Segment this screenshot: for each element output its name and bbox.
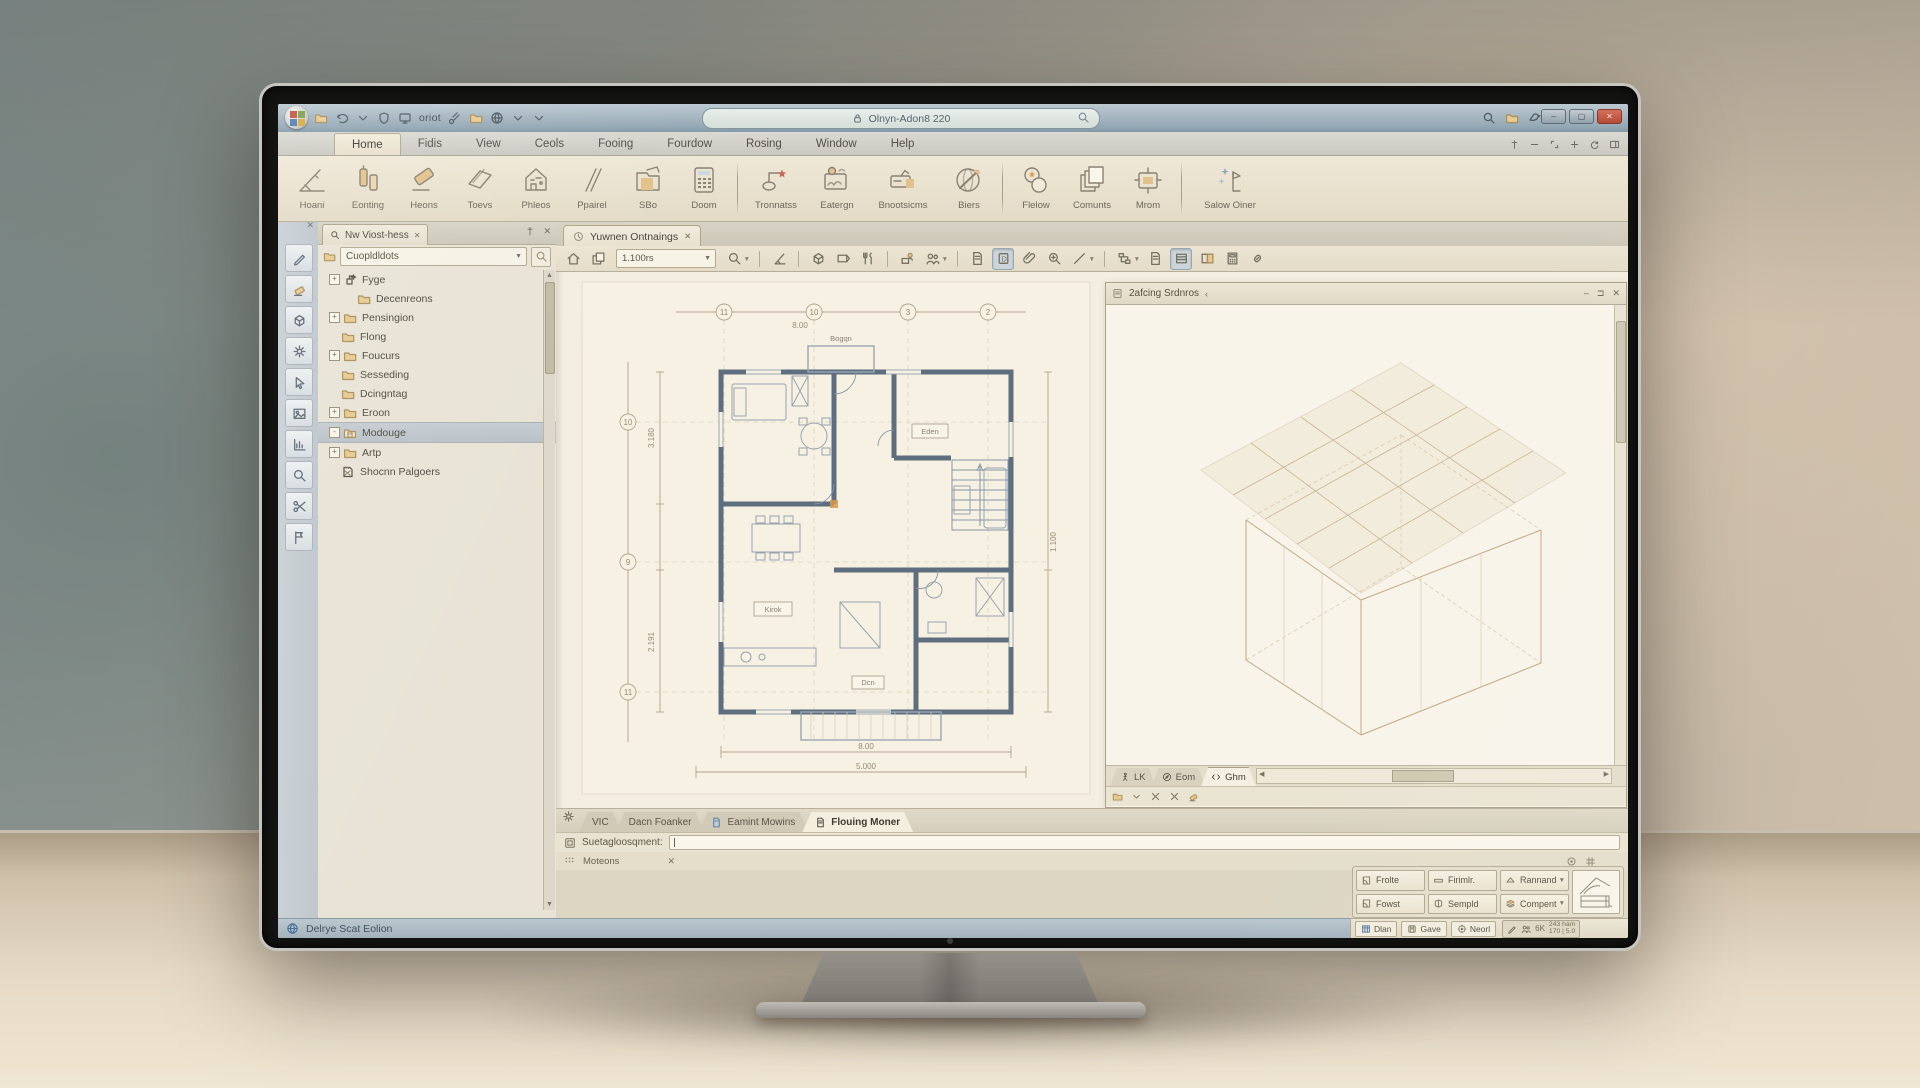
tree-item-label: Artp	[362, 447, 381, 459]
scroll-down-icon[interactable]: ▼	[544, 899, 555, 910]
folder-icon	[341, 330, 355, 344]
flag-icon	[292, 530, 307, 545]
door-icon	[1361, 898, 1372, 909]
minus-icon[interactable]	[1529, 139, 1540, 150]
sbo-button[interactable]: SBo	[620, 156, 676, 221]
button-label: Gave	[1420, 924, 1440, 934]
image-icon	[292, 406, 307, 421]
plug-icon	[1131, 163, 1165, 197]
magnifier-icon	[727, 251, 742, 266]
axonometry-vertical-scrollbar[interactable]	[1614, 305, 1626, 765]
navigator-search-button[interactable]	[531, 247, 551, 267]
scroll-left-icon[interactable]: ◀	[1259, 770, 1264, 778]
button-label: Fowst	[1376, 899, 1400, 909]
menu-fourdow[interactable]: Fourdow	[650, 132, 729, 155]
navigator-combo-value: Cuopldldots	[346, 251, 399, 262]
doc-tool-doc-icon[interactable]	[1145, 249, 1165, 269]
flelow-button[interactable]: Flelow	[1008, 156, 1064, 221]
tool-chart-icon[interactable]	[285, 430, 313, 458]
toolbar-button-label: Hoani	[300, 200, 325, 211]
toolbar-button-label: SBo	[639, 200, 657, 211]
doc-blue-icon	[711, 817, 722, 828]
dimension-label: 1.100	[1049, 531, 1058, 552]
chevron-down-icon[interactable]: ▼	[1559, 900, 1565, 907]
line-icon	[1072, 251, 1087, 266]
flow-icon	[1117, 251, 1132, 266]
calc-icon	[1225, 251, 1240, 266]
tool-pen-icon[interactable]	[285, 244, 313, 272]
button-label: Firimlr.	[1448, 875, 1475, 885]
fowst-button[interactable]: Fowst	[1356, 894, 1425, 915]
pin-icon[interactable]	[1509, 139, 1520, 150]
axonometry-viewport[interactable]	[1106, 305, 1626, 765]
pen-icon	[292, 251, 307, 266]
rannand-button[interactable]: Rannand▼	[1500, 870, 1569, 891]
command-row: Suetagloosqment:	[556, 832, 1628, 852]
menu-fidis[interactable]: Fidis	[401, 132, 459, 155]
menu-bar: HomeFidisViewCeolsFooingFourdowRosingWin…	[278, 132, 1628, 156]
toolbar-button-label: Tronnatss	[755, 200, 797, 211]
hoani-button[interactable]: Hoani	[284, 156, 340, 221]
expand-icon[interactable]: +	[329, 447, 340, 458]
navigator-scrollbar[interactable]: ▲ ▼	[543, 270, 555, 910]
node-icon	[343, 273, 357, 287]
sempld-button[interactable]: Sempld	[1428, 894, 1497, 915]
chrome-right-icons	[1482, 104, 1542, 132]
tool-scissors-icon[interactable]	[285, 492, 313, 520]
dimension-label: 3.180	[647, 427, 656, 448]
tree-item-label: Eroon	[362, 407, 390, 419]
box3d-icon	[811, 251, 826, 266]
toevs-button[interactable]: Toevs	[452, 156, 508, 221]
doc-tool-calc-icon[interactable]	[1222, 249, 1242, 269]
menu-ceols[interactable]: Ceols	[518, 132, 581, 155]
status-bar-left: Delrye Scat Eolion	[278, 918, 1350, 938]
tree-item-label: Foucurs	[362, 350, 400, 362]
grid-bubble-label: 2	[986, 308, 991, 317]
spray-icon[interactable]	[448, 111, 462, 125]
doc-tool-label-icon[interactable]	[833, 249, 853, 269]
bird-icon[interactable]	[1528, 111, 1542, 125]
tree-item-eroon[interactable]: +Eroon	[318, 403, 556, 422]
grid-bubble-label: 10	[810, 308, 819, 317]
target-icon[interactable]	[1566, 856, 1577, 867]
grid-icon[interactable]	[1585, 856, 1596, 867]
salow-oiner-button[interactable]: Salow Oiner	[1187, 156, 1273, 221]
quick-launch-text[interactable]: oriot	[419, 112, 441, 124]
ruler-compass-icon	[295, 163, 329, 197]
layers-icon	[591, 251, 606, 266]
view-tab-vic[interactable]: VIC	[579, 812, 622, 832]
chevron-down-icon[interactable]	[511, 111, 525, 125]
axonometry-window: 2afcing Srdnros ‹ –⊐✕	[1105, 282, 1627, 808]
menu-window[interactable]: Window	[799, 132, 874, 155]
people-icon	[1521, 924, 1531, 934]
folder-icon	[341, 368, 355, 382]
tronnatss-button[interactable]: Tronnatss	[743, 156, 809, 221]
scroll-right-icon[interactable]: ▶	[1604, 770, 1609, 778]
button-label: Rannand	[1520, 875, 1557, 885]
tool-cursor-icon[interactable]	[285, 368, 313, 396]
chevron-down-icon[interactable]: ▼	[744, 256, 750, 263]
doc-tool-layers-icon[interactable]	[588, 249, 608, 269]
monitor-stand	[800, 953, 1100, 1007]
menu-home[interactable]: Home	[334, 133, 401, 155]
navigator-tab-label: Nw Viost-hess	[345, 230, 409, 241]
browser-chrome-bar: oriot Olnyn-Adon8 220 –▢✕	[278, 104, 1628, 133]
mrom-button[interactable]: Mrom	[1120, 156, 1176, 221]
doc-tool-people-icon[interactable]: ▼	[922, 249, 942, 269]
project-tree: +FygeDecenreons+PensingionFlong+FoucursS…	[318, 270, 556, 481]
chevron-down-icon[interactable]: ▼	[1134, 256, 1140, 263]
doc-tool-doc-icon[interactable]	[967, 249, 987, 269]
eonting-button[interactable]: Eonting	[340, 156, 396, 221]
toolbar-separator	[759, 251, 760, 267]
doc-tool-tools-icon[interactable]	[858, 249, 878, 269]
doc-tool-line-icon[interactable]: ▼	[1069, 249, 1089, 269]
axonometry-drawing	[1106, 305, 1611, 765]
axonometry-window-titlebar[interactable]: 2afcing Srdnros ‹ –⊐✕	[1106, 283, 1626, 305]
eraser-icon	[292, 282, 307, 297]
ruled-icon	[1174, 251, 1189, 266]
chevron-down-icon[interactable]	[1131, 791, 1142, 802]
tree-item-label: Fyge	[362, 274, 385, 286]
zoom-icon	[1047, 251, 1062, 266]
status-bar-right: DlanGaveNeorl6K243 hám170 | 5.0	[1350, 918, 1628, 938]
folder-icon[interactable]	[469, 111, 483, 125]
options-close-icon[interactable]: ✕	[667, 856, 675, 867]
eraser-big-icon	[407, 163, 441, 197]
view-tab-flouing-moner[interactable]: Flouing Moner	[802, 812, 913, 832]
detail-preview-thumbnail[interactable]	[1572, 870, 1620, 914]
chevron-down-icon[interactable]	[532, 111, 546, 125]
document-tab-close-icon[interactable]: ✕	[684, 231, 691, 242]
chart-icon	[292, 437, 307, 452]
document-toolbar: 1.100rs▼▼▼D▼▼	[556, 246, 1628, 272]
doc-icon	[970, 251, 985, 266]
tree-item-shocnn-palgoers[interactable]: Shocnn Palgoers	[318, 462, 556, 481]
dock-icon[interactable]	[1609, 139, 1620, 150]
grid-dots-icon	[564, 856, 575, 867]
expand-icon[interactable]	[1549, 139, 1560, 150]
button-label: Frolte	[1376, 875, 1399, 885]
button-label: Sempld	[1448, 899, 1479, 909]
shell-icon	[1433, 898, 1444, 909]
tree-item-foucurs[interactable]: +Foucurs	[318, 346, 556, 365]
compass-icon	[1162, 772, 1172, 782]
toolbar-separator	[798, 251, 799, 267]
tab-label: LK	[1134, 772, 1146, 783]
button-label: Dlan	[1374, 924, 1391, 934]
doc-icon	[815, 817, 826, 828]
left-tool-strip: ✕	[278, 222, 319, 918]
doc-tool-zoom-icon[interactable]	[1044, 249, 1064, 269]
columns-icon	[351, 163, 385, 197]
view-tab-eamint-mowins[interactable]: Eamint Mowins	[698, 812, 808, 832]
menu-fooing[interactable]: Fooing	[581, 132, 650, 155]
tool-flag-icon[interactable]	[285, 523, 313, 551]
axonometry-horizontal-scrollbar[interactable]: ◀ ▶	[1256, 768, 1612, 784]
button-label: Neorl	[1470, 924, 1490, 934]
axonometry-window-title: 2afcing Srdnros	[1129, 288, 1199, 299]
doc-tool-box3d-icon[interactable]	[808, 249, 828, 269]
expand-icon[interactable]: +	[329, 407, 340, 418]
door-icon	[1361, 875, 1372, 886]
dimension-label: 8.00	[792, 321, 808, 330]
pin-window-button[interactable]: ⊐	[1597, 288, 1605, 298]
bezel-logo-dot	[947, 938, 953, 944]
magnifier-icon[interactable]	[1482, 111, 1496, 125]
tree-item-label: Flong	[360, 331, 386, 343]
eraser-icon[interactable]	[1188, 791, 1199, 802]
comunts-button[interactable]: Comunts	[1064, 156, 1120, 221]
target-icon	[1457, 924, 1467, 934]
collapse-icon[interactable]: -	[329, 427, 340, 438]
stack-icon	[1505, 898, 1516, 909]
folder-icon	[341, 387, 355, 401]
tree-item-label: Pensingion	[362, 312, 414, 324]
window-controls: –▢✕	[1541, 109, 1622, 124]
address-bar[interactable]: Olnyn-Adon8 220	[702, 108, 1100, 129]
application-screen: oriot Olnyn-Adon8 220 –▢✕ HomeFidisViewC…	[278, 104, 1628, 938]
view-settings-icon[interactable]	[562, 810, 575, 828]
phleos-button[interactable]: Phleos	[508, 156, 564, 221]
minimize-window-button[interactable]: –	[1584, 288, 1589, 298]
close-window-button[interactable]: ✕	[1612, 288, 1620, 298]
close-icon[interactable]	[1150, 791, 1161, 802]
tree-item-label: Dcingntag	[360, 388, 407, 400]
svg-text:D: D	[1001, 255, 1007, 264]
beam-icon	[463, 163, 497, 197]
layers3-icon	[1075, 163, 1109, 197]
shield-icon[interactable]	[377, 111, 391, 125]
navigator-tab[interactable]: Nw Viost-hess ✕	[322, 224, 428, 245]
sketch-icon	[341, 465, 355, 479]
tab-label: Dacn Foanker	[629, 817, 692, 828]
command-label: Suetagloosqment:	[582, 837, 663, 848]
tree-item-dcingntag[interactable]: Dcingntag	[318, 384, 556, 403]
toolbar-separator	[887, 251, 888, 267]
clip-icon	[1022, 251, 1037, 266]
undo-icon[interactable]	[335, 111, 349, 125]
scale-combobox[interactable]: 1.100rs▼	[616, 249, 716, 268]
tool-eraser-icon[interactable]	[285, 275, 313, 303]
dlan-button[interactable]: Dlan	[1355, 921, 1397, 937]
close-button[interactable]: ✕	[1597, 109, 1622, 124]
grid-bubble-label: 11	[624, 688, 633, 697]
neorl-button[interactable]: Neorl	[1451, 921, 1496, 937]
pen-icon	[1507, 924, 1517, 934]
refresh-icon[interactable]	[1589, 139, 1600, 150]
toolbar-separator	[1002, 162, 1003, 215]
tree-item-label: Sesseding	[360, 369, 409, 381]
room-label: Dcn	[861, 678, 874, 687]
minimize-button[interactable]: –	[1541, 109, 1566, 124]
address-search-icon[interactable]	[1077, 111, 1090, 124]
callout-icon	[886, 163, 920, 197]
doc-icon	[1148, 251, 1163, 266]
monitor-icon[interactable]	[398, 111, 412, 125]
monitor-stand-base	[756, 1002, 1146, 1018]
tree-item-artp[interactable]: +Artp	[318, 443, 556, 462]
dimension-label: 2.191	[647, 631, 656, 652]
ruler-icon	[772, 251, 787, 266]
plus-icon[interactable]	[1569, 139, 1580, 150]
toolbar-group: FlelowComuntsMrom	[1008, 156, 1176, 221]
sparkle-flag-icon	[1213, 163, 1247, 197]
tree-item-modouge[interactable]: -Modouge	[318, 422, 556, 443]
room-label: Kirok	[764, 605, 781, 614]
command-input[interactable]	[669, 835, 1620, 850]
doc-tool-marker-icon[interactable]: D	[992, 248, 1014, 270]
monitor: oriot Olnyn-Adon8 220 –▢✕ HomeFidisViewC…	[259, 83, 1641, 951]
tool-image-icon[interactable]	[285, 399, 313, 427]
folder-icon[interactable]	[314, 111, 328, 125]
biers-button[interactable]: Biers	[941, 156, 997, 221]
doom-button[interactable]: Doom	[676, 156, 732, 221]
menu-view[interactable]: View	[459, 132, 518, 155]
chevron-down-icon[interactable]: ▼	[942, 256, 948, 263]
axon-tab-eom[interactable]: Eom	[1152, 768, 1206, 786]
bnootsicms-button[interactable]: Bnootsicms	[865, 156, 941, 221]
status-metrics: 243 hám170 | 5.0	[1549, 922, 1575, 936]
toolbar-group: TronnatssEatergnBnootsicmsBiers	[743, 156, 997, 221]
gave-button[interactable]: Gave	[1401, 921, 1446, 937]
status-text: Delrye Scat Eolion	[306, 923, 392, 935]
calc-grid-icon	[687, 163, 721, 197]
view-tab-strip: VICDacn FoankerEamint MowinsFlouing Mone…	[556, 808, 1628, 832]
doc-tool-clip-icon[interactable]	[1019, 249, 1039, 269]
marker-icon: D	[996, 251, 1011, 266]
folder-icon[interactable]	[1112, 791, 1123, 802]
maximize-button[interactable]: ▢	[1569, 109, 1594, 124]
pin-panel-icon[interactable]	[525, 226, 535, 237]
table-icon	[1361, 924, 1371, 934]
toolbar-button-label: Bnootsicms	[878, 200, 927, 211]
label-icon	[836, 251, 851, 266]
room-label: Bogqn	[830, 334, 852, 343]
expand-icon[interactable]: +	[329, 312, 340, 323]
menu-help[interactable]: Help	[874, 132, 932, 155]
grid-bubble-label: 10	[624, 418, 633, 427]
back-icon[interactable]: ‹	[1205, 289, 1208, 299]
doc-tool-split-icon[interactable]	[1197, 249, 1217, 269]
start-orb-icon[interactable]	[285, 106, 308, 129]
room-label: Eden	[921, 427, 939, 436]
tab-label: VIC	[592, 817, 609, 828]
tab-label: Flouing Moner	[831, 817, 900, 828]
magnifier-icon	[535, 250, 548, 263]
axonometry-icon-row	[1106, 786, 1626, 806]
ppairel-button[interactable]: Ppairel	[564, 156, 620, 221]
lines-icon	[575, 163, 609, 197]
roof-icon	[1505, 875, 1516, 886]
split-icon	[1200, 251, 1215, 266]
scroll-up-icon[interactable]: ▲	[544, 270, 555, 281]
document-tab-label: Yuwnen Ontnaings	[590, 231, 678, 243]
globe-icon[interactable]	[490, 111, 504, 125]
firimlr--button[interactable]: Firimlr.	[1428, 870, 1497, 891]
tree-item-decenreons[interactable]: Decenreons	[318, 289, 556, 308]
folder-doc-icon	[343, 426, 357, 440]
chevron-down-icon[interactable]: ▼	[1089, 256, 1095, 263]
people-icon	[925, 251, 940, 266]
doc-tool-plot-icon[interactable]	[897, 249, 917, 269]
code-icon	[1211, 772, 1221, 782]
folder-book-icon	[631, 163, 665, 197]
chevron-down-icon[interactable]	[356, 111, 370, 125]
eatergn-button[interactable]: Eatergn	[809, 156, 865, 221]
options-label: Moteons	[583, 856, 619, 867]
doc-tool-magnifier-icon[interactable]: ▼	[724, 249, 744, 269]
frolte-button[interactable]: Frolte	[1356, 870, 1425, 891]
tool-gear-icon[interactable]	[285, 337, 313, 365]
doc-tool-home-icon[interactable]	[563, 249, 583, 269]
heons-button[interactable]: Heons	[396, 156, 452, 221]
button-label: Compent	[1520, 899, 1557, 909]
navigator-tab-close-icon[interactable]: ✕	[414, 231, 421, 240]
gear-icon	[562, 810, 575, 823]
chevron-down-icon[interactable]: ▼	[1559, 877, 1565, 884]
doc-tool-ruled-icon[interactable]	[1170, 248, 1192, 270]
drawing-canvas[interactable]: 11 10 3 2 10 9 11 8.00 8.00 5.000 3.180 …	[556, 272, 1628, 808]
circles-icon	[1019, 163, 1053, 197]
search-tab-icon	[330, 230, 340, 240]
toolbar-separator	[1104, 251, 1105, 267]
tree-item-flong[interactable]: Flong	[318, 327, 556, 346]
node-link-icon	[759, 163, 793, 197]
panel-close-icon[interactable]: ✕	[543, 226, 551, 237]
tool-box3d-icon[interactable]	[285, 306, 313, 334]
tree-item-sesseding[interactable]: Sesseding	[318, 365, 556, 384]
doc-tool-flow-icon[interactable]: ▼	[1114, 249, 1134, 269]
tree-item-pensingion[interactable]: +Pensingion	[318, 308, 556, 327]
command-icon	[564, 837, 576, 849]
tree-item-label: Decenreons	[376, 293, 433, 305]
house-plan-icon	[519, 163, 553, 197]
close-icon[interactable]	[1169, 791, 1180, 802]
grid-bubble-label: 9	[626, 558, 631, 567]
toolbar-button-label: Biers	[958, 200, 980, 211]
axon-tab-lk[interactable]: LK	[1110, 768, 1156, 786]
tool-magnifier-icon[interactable]	[285, 461, 313, 489]
doc-tool-link-icon[interactable]	[1247, 249, 1267, 269]
lock-icon	[852, 113, 863, 124]
doc-tool-ruler-icon[interactable]	[769, 249, 789, 269]
expand-icon[interactable]: +	[329, 350, 340, 361]
folder-icon[interactable]	[1505, 111, 1519, 125]
navigator-tab-strip: Nw Viost-hess ✕ ✕	[318, 222, 556, 245]
floor-plan-drawing[interactable]: 11 10 3 2 10 9 11 8.00 8.00 5.000 3.180 …	[556, 272, 1116, 808]
dimension-label: 5.000	[856, 762, 877, 771]
document-tab[interactable]: Yuwnen Ontnaings ✕	[563, 225, 701, 247]
view-tab-dacn-foanker[interactable]: Dacn Foanker	[616, 812, 705, 832]
expand-icon[interactable]: +	[329, 274, 340, 285]
toolbar-button-label: Phleos	[521, 200, 550, 211]
menu-rosing[interactable]: Rosing	[729, 132, 799, 155]
axon-tab-ghm[interactable]: Ghm	[1201, 767, 1256, 786]
toolbar-button-label: Ppairel	[577, 200, 607, 211]
grid-bubble-label: 11	[720, 308, 729, 317]
toolbar-separator	[737, 162, 738, 215]
slab-icon	[1433, 875, 1444, 886]
toolbar-button-label: Salow Oiner	[1204, 200, 1256, 211]
scissors-icon	[292, 499, 307, 514]
toolbar-button-label: Comunts	[1073, 200, 1111, 211]
tree-item-fyge[interactable]: +Fyge	[318, 270, 556, 289]
compent-button[interactable]: Compent▼	[1500, 894, 1569, 915]
navigator-combobox[interactable]: Cuopldldots ▼	[340, 247, 527, 266]
